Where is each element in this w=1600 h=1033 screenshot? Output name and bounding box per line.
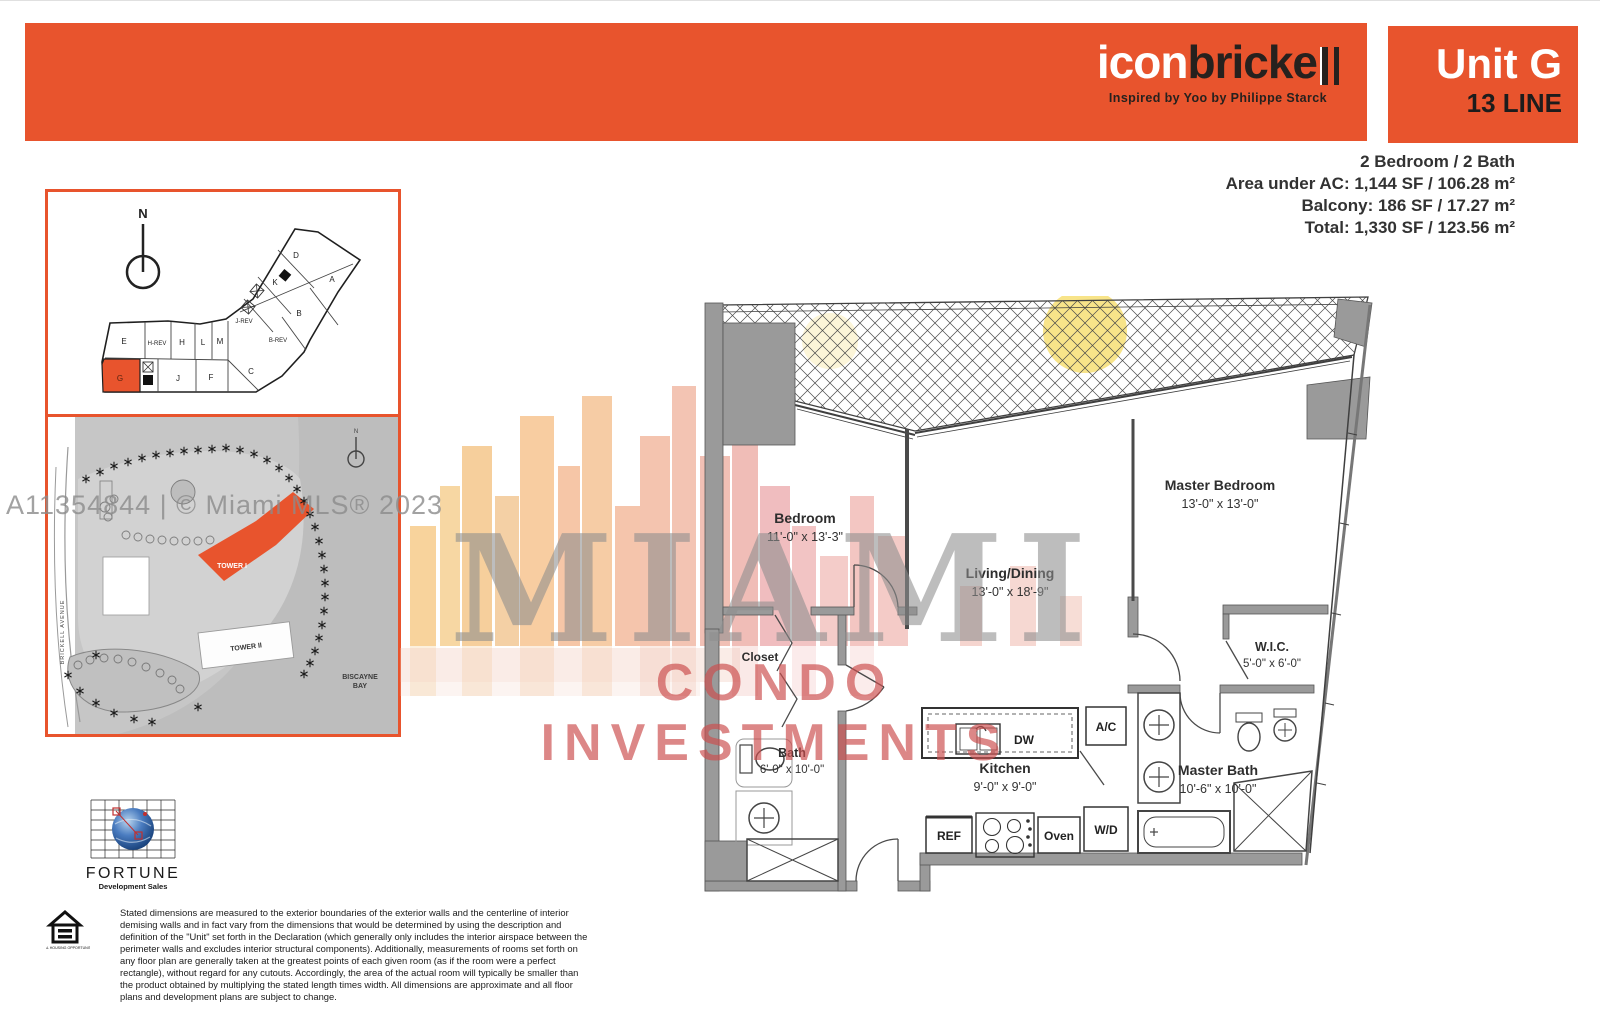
room-dims: 13'-0" x 13'-0" [1182,497,1259,511]
unit-stats: 2 Bedroom / 2 Bath Area under AC: 1,144 … [900,151,1515,239]
cooktop [976,813,1034,857]
keyplan-unit-label: J [176,374,180,383]
equal-housing-label: EQUAL HOUSING OPPORTUNITY [46,946,90,950]
biscayne-bay-label: BISCAYNE [342,674,378,681]
keyplan-unit-label: F [209,373,214,382]
room-dims: 10'-6" x 10'-0" [1180,782,1257,796]
mls-watermark-text: A11354844 | © Miami MLS® 2023 [6,490,443,521]
keyplan-building-outline [102,229,360,392]
stat-total: Total: 1,330 SF / 123.56 m² [900,217,1515,239]
logo-tagline: Inspired by Yoo by Philippe Starck [1097,91,1339,105]
stat-area-ac: Area under AC: 1,144 SF / 106.28 m² [900,173,1515,195]
room-dims: 5'-0" x 6'-0" [1243,658,1301,670]
keyplan-unit-label: C [248,367,254,376]
condo-investments-watermark: CONDO INVESTMENTS [425,653,1125,773]
siteplan-drawing: TOWER I TOWER II N BISCAYNE BAY BRICKELL… [48,417,398,734]
keyplan-unit-label: J-REV [235,319,252,325]
unit-header-block: Unit G 13 LINE [1388,26,1578,143]
stat-bed-bath: 2 Bedroom / 2 Bath [900,151,1515,173]
keyplan-unit-label: B-REV [269,338,287,344]
keyplan-unit-label: H [179,338,185,347]
logo-bar-icon [1320,47,1328,85]
siteplan-north-label: N [354,429,358,435]
biscayne-bay-label: BAY [353,683,367,690]
oven-label: Oven [1044,829,1074,843]
keyplan-unit-label: A [329,275,335,284]
keyplan-unit-label: D [293,251,299,260]
header-bar: iconbricke Inspired by Yoo by Philippe S… [25,23,1367,141]
fortune-name: FORTUNE [86,865,181,882]
parking-structure [103,557,149,615]
logo-word-icon: icon [1097,39,1188,85]
room-label: Master Bath [1178,762,1258,778]
keyplan-unit-label: E [121,337,126,346]
siteplan: TOWER I TOWER II N BISCAYNE BAY BRICKELL… [45,414,401,737]
room-label: Master Bedroom [1165,477,1275,493]
keyplan-unit-label-highlighted: G [117,374,123,383]
equal-housing-icon: EQUAL HOUSING OPPORTUNITY [46,907,90,961]
keyplan-unit-label: L [201,338,206,347]
room-dims: 9'-0" x 9'-0" [974,780,1037,794]
unit-title: Unit G [1388,26,1578,86]
logo-bar-icon [1331,47,1339,85]
keyplan-unit-label: M [217,337,224,346]
keyplan-unit-label: K [272,278,278,287]
keyplan-drawing: N D K A B J-REV B-REV E H-R [48,192,398,414]
unit-line-label: 13 LINE [1388,86,1578,119]
tower1-label: TOWER I [217,563,247,570]
room-label: W.I.C. [1255,640,1289,654]
street-strip [48,417,75,734]
miami-watermark-title: MIAMI [425,515,1125,663]
keyplan: N D K A B J-REV B-REV E H-R [45,189,401,417]
logo-word-brickell: bricke [1187,39,1317,85]
keyplan-north-label: N [138,206,147,221]
keyplan-unit-label: H-REV [148,341,167,347]
fortune-logo: FORTUNE Development Sales [83,796,193,901]
fortune-sub: Development Sales [99,882,168,891]
disclaimer-text: Stated dimensions are measured to the ex… [120,907,588,1003]
balcony [720,297,1368,439]
stat-balcony: Balcony: 186 SF / 17.27 m² [900,195,1515,217]
brickell-avenue-label: BRICKELL AVENUE [60,600,66,665]
keyplan-unit-label: B [296,309,301,318]
iconbrickell-logo: iconbricke Inspired by Yoo by Philippe S… [1097,39,1339,105]
ref-label: REF [937,829,961,843]
wd-label: W/D [1094,823,1118,837]
